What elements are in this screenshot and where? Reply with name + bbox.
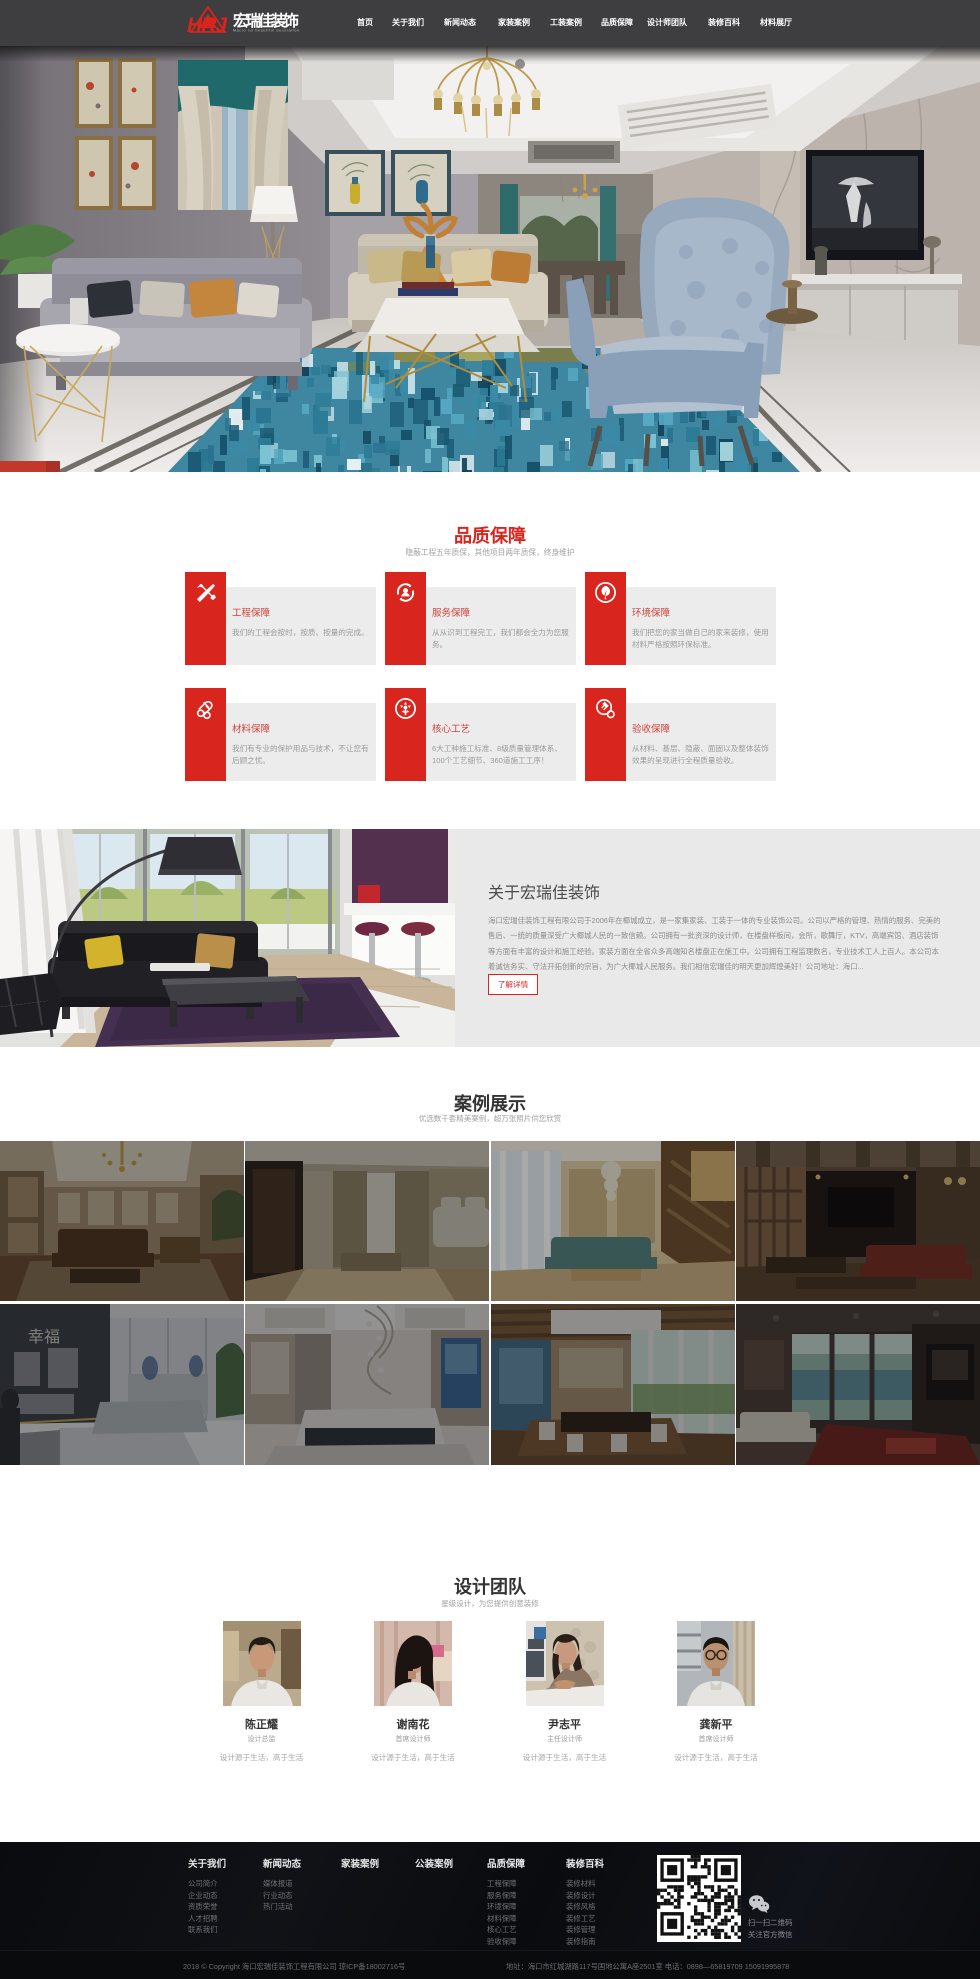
svg-text:Macro rui beautiful decoration: Macro rui beautiful decoration — [233, 29, 299, 33]
svg-text:HRJ: HRJ — [187, 14, 228, 37]
svg-text:宏瑞佳装饰: 宏瑞佳装饰 — [233, 11, 299, 30]
